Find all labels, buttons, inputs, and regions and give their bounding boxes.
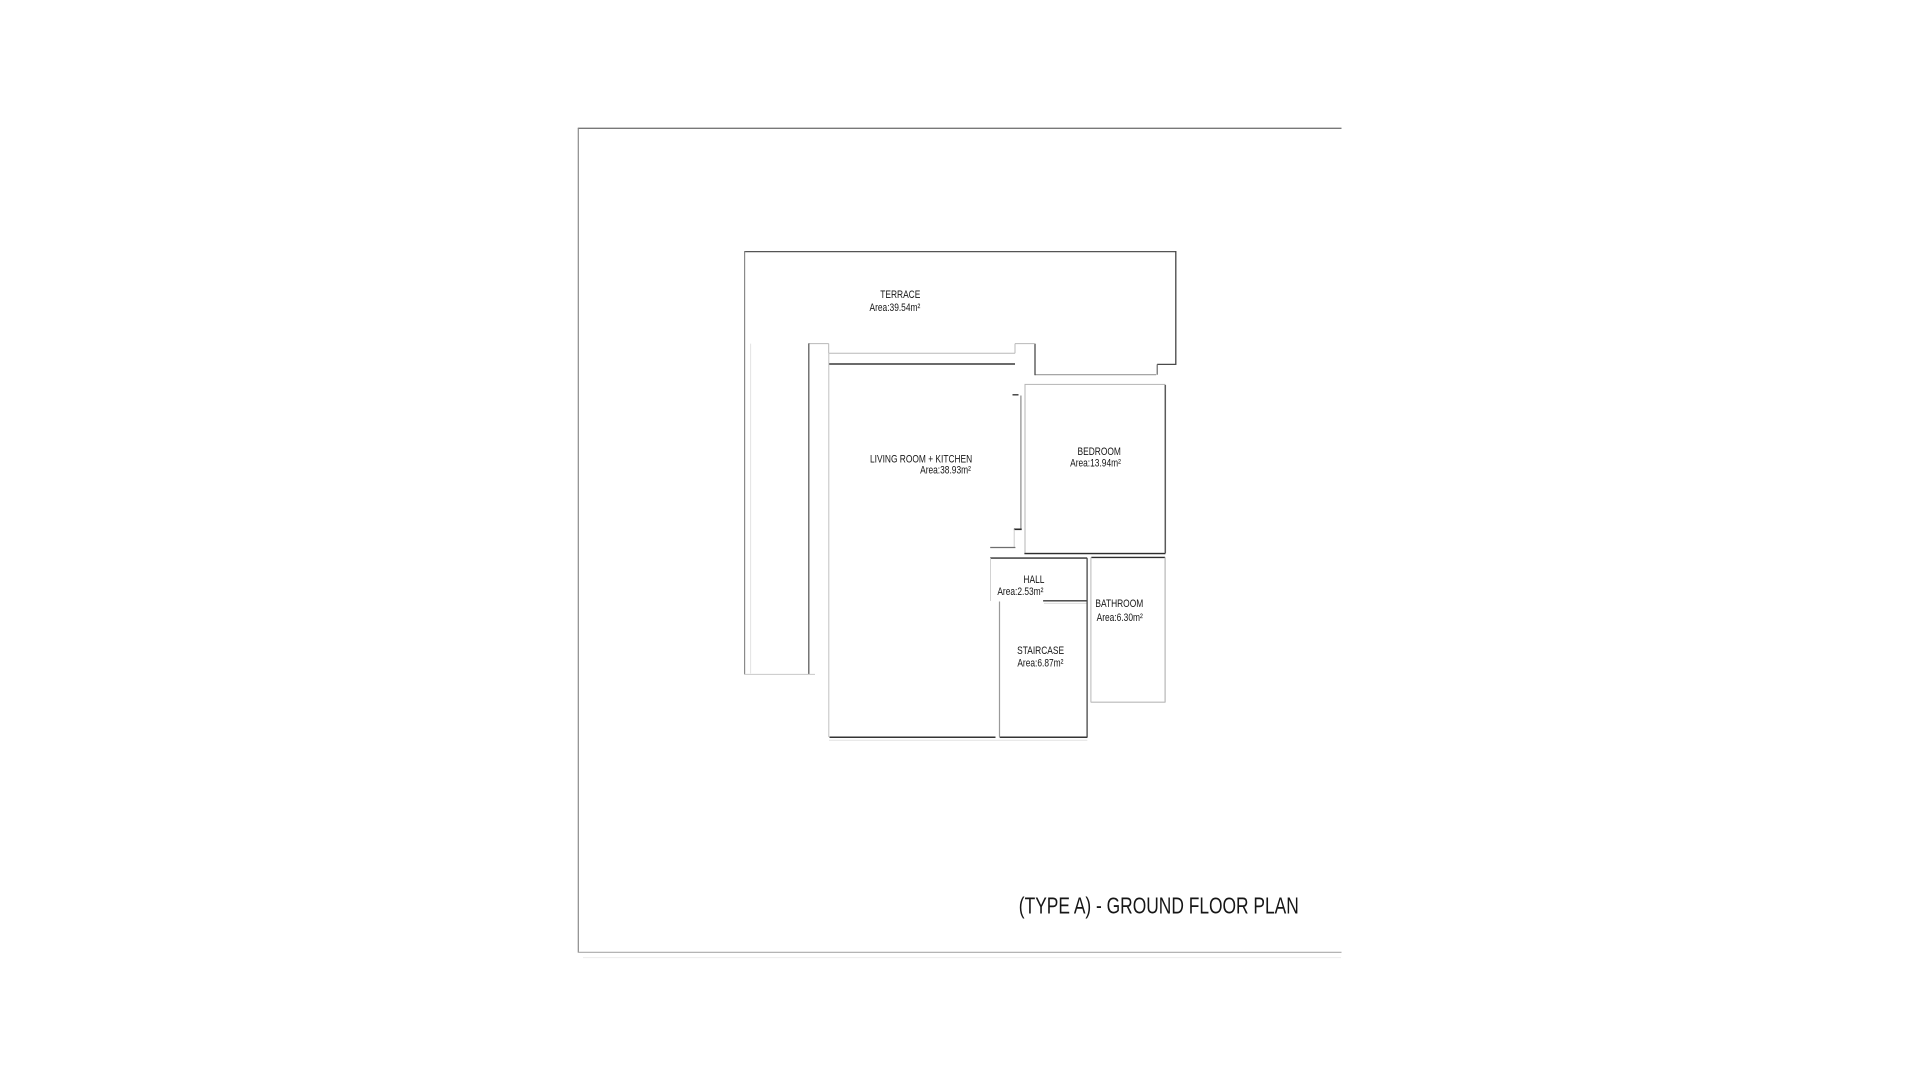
- svg-text:STAIRCASE: STAIRCASE: [1017, 645, 1064, 657]
- svg-text:HALL: HALL: [1023, 574, 1044, 586]
- svg-text:Area:2.53m²: Area:2.53m²: [997, 586, 1044, 598]
- svg-text:Area:13.94m²: Area:13.94m²: [1070, 457, 1121, 469]
- svg-text:TERRACE: TERRACE: [880, 289, 920, 301]
- svg-text:BATHROOM: BATHROOM: [1095, 598, 1143, 610]
- svg-text:Area:38.93m²: Area:38.93m²: [920, 465, 971, 477]
- svg-text:Area:6.87m²: Area:6.87m²: [1017, 658, 1064, 670]
- svg-text:(TYPE A) - GROUND FLOOR PLAN: (TYPE A) - GROUND FLOOR PLAN: [1019, 893, 1299, 919]
- svg-text:Area:39.54m²: Area:39.54m²: [870, 302, 921, 314]
- svg-text:Area:6.30m²: Area:6.30m²: [1097, 612, 1144, 624]
